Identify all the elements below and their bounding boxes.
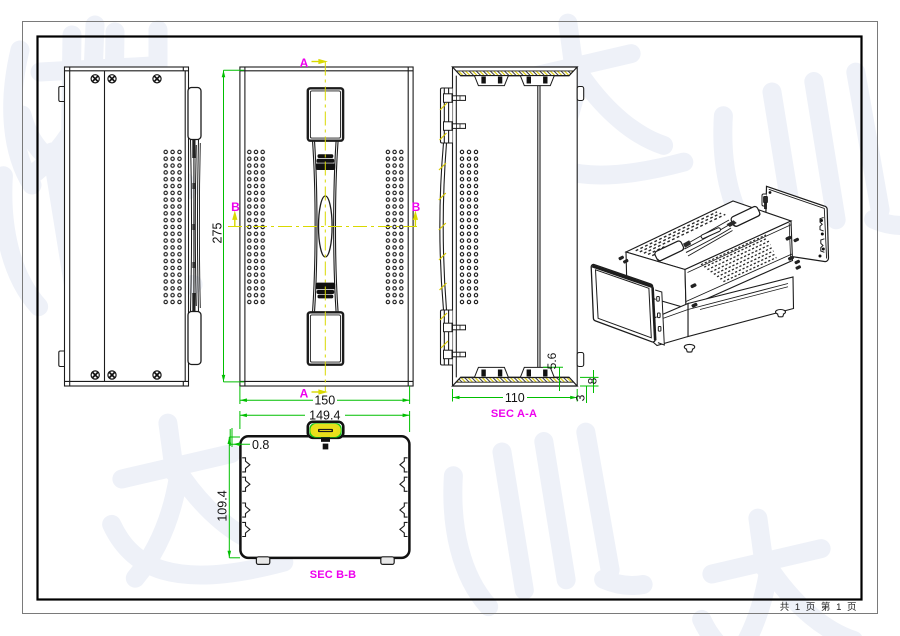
svg-text:150: 150 bbox=[314, 394, 335, 408]
svg-text:SEC B-B: SEC B-B bbox=[310, 569, 357, 581]
svg-text:A: A bbox=[300, 56, 309, 70]
svg-text:0.8: 0.8 bbox=[252, 438, 269, 452]
svg-text:109.4: 109.4 bbox=[216, 490, 230, 521]
svg-text:8: 8 bbox=[586, 377, 600, 384]
svg-text:B: B bbox=[412, 200, 421, 214]
svg-text:B: B bbox=[231, 200, 240, 214]
svg-text:共 1 页 第 1 页: 共 1 页 第 1 页 bbox=[780, 601, 858, 613]
svg-text:A: A bbox=[300, 387, 309, 401]
svg-text:SEC A-A: SEC A-A bbox=[491, 408, 537, 420]
svg-text:110: 110 bbox=[505, 391, 525, 405]
svg-text:275: 275 bbox=[211, 223, 225, 244]
svg-text:5.6: 5.6 bbox=[545, 352, 559, 369]
svg-text:3: 3 bbox=[574, 394, 588, 401]
